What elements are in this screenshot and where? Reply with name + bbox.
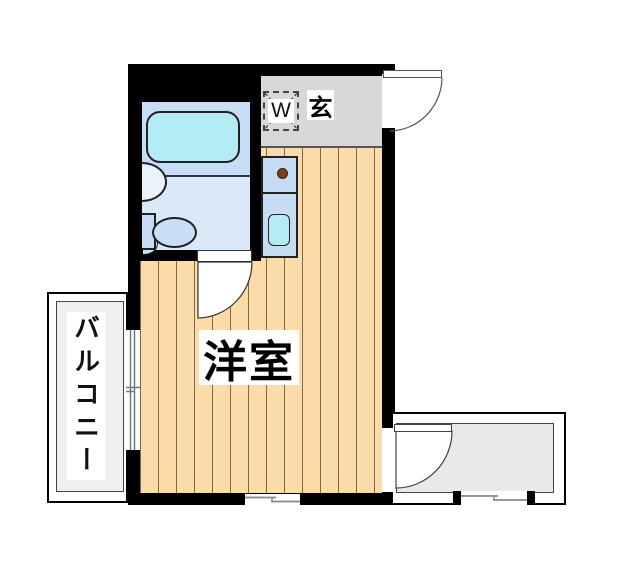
- counter-divider-line: [261, 192, 298, 194]
- balcony: バルコニー: [47, 292, 128, 503]
- balcony-window-icon: [126, 330, 140, 450]
- room-door: [394, 424, 452, 432]
- exterior-window-jamb: [453, 491, 461, 505]
- balcony-label-strip: バルコニー: [67, 312, 105, 480]
- bathroom-door-swing-icon: [197, 262, 254, 320]
- entrance-area: W 玄: [261, 76, 382, 148]
- exterior-window-icon: [461, 491, 527, 505]
- south-window-icon: [245, 494, 300, 505]
- bathtub-icon: [146, 111, 240, 163]
- bathroom-door: [197, 250, 252, 262]
- stove-burner-icon: [277, 168, 288, 179]
- room-door-swing-icon: [395, 428, 455, 491]
- floor-plan: W 玄 バルコニー: [0, 0, 617, 564]
- exterior-window-jamb: [527, 491, 535, 505]
- washer-label: W: [268, 99, 294, 122]
- entrance-door-swing-icon: [389, 77, 445, 133]
- entrance-label: 玄: [307, 90, 334, 120]
- kitchen-counter: [261, 156, 298, 258]
- bathroom: [142, 102, 250, 250]
- toilet-icon: [152, 217, 197, 248]
- kitchen-sink-icon: [268, 214, 290, 246]
- balcony-label: バルコニー: [68, 314, 105, 479]
- main-room-label: 洋室: [199, 330, 299, 385]
- washing-machine-space: W: [263, 91, 299, 131]
- room-door-opening: [382, 428, 395, 492]
